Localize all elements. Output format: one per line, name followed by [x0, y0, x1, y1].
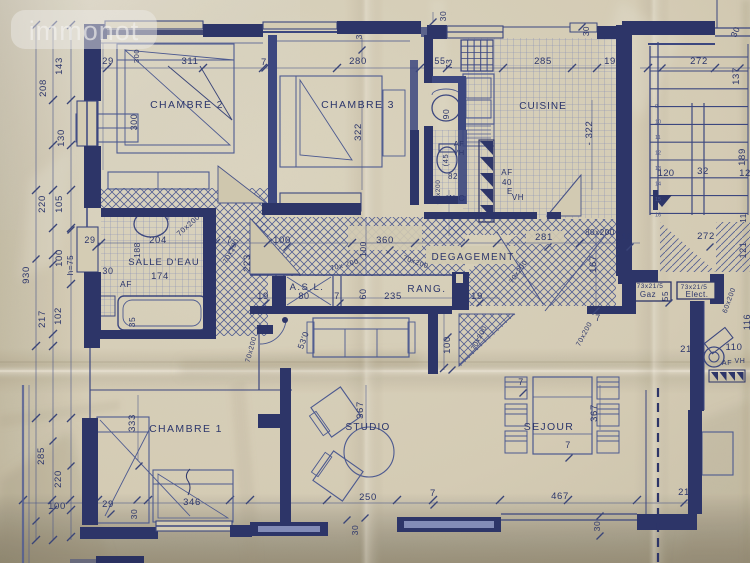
svg-text:217: 217	[37, 310, 48, 328]
svg-text:100: 100	[358, 241, 368, 257]
svg-text:137: 137	[731, 67, 742, 85]
svg-text:(45: (45	[441, 154, 450, 167]
svg-text:90: 90	[441, 109, 451, 120]
svg-text:Gaz: Gaz	[640, 290, 656, 299]
svg-text:189: 189	[737, 148, 748, 166]
svg-text:285: 285	[534, 56, 552, 67]
svg-text:100: 100	[442, 336, 453, 354]
svg-text:60: 60	[358, 288, 368, 299]
svg-text:223: 223	[242, 254, 253, 272]
svg-text:272: 272	[697, 231, 715, 242]
svg-text:40: 40	[502, 178, 512, 187]
svg-text:7: 7	[518, 377, 524, 387]
svg-text:SEJOUR: SEJOUR	[524, 421, 574, 433]
svg-text:250: 250	[359, 492, 377, 503]
svg-text:102: 102	[53, 307, 64, 325]
svg-text:55: 55	[661, 291, 670, 301]
svg-text:120: 120	[658, 168, 675, 179]
svg-text:AF: AF	[120, 279, 132, 289]
svg-text:116: 116	[742, 314, 750, 330]
svg-text:30: 30	[582, 26, 591, 36]
svg-text:143: 143	[54, 57, 65, 75]
svg-text:100: 100	[54, 249, 65, 267]
svg-text:272: 272	[690, 56, 708, 67]
svg-text:9: 9	[655, 104, 658, 110]
svg-text:167: 167	[588, 255, 599, 273]
svg-text:h=75: h=75	[66, 255, 75, 275]
svg-text:220: 220	[37, 195, 48, 213]
svg-text:immonot: immonot	[29, 16, 140, 46]
svg-text:14: 14	[655, 182, 661, 188]
svg-text:7: 7	[595, 313, 601, 323]
svg-text:300: 300	[132, 49, 141, 63]
svg-text:174: 174	[151, 271, 169, 282]
svg-text:208: 208	[38, 79, 49, 97]
svg-text:7: 7	[334, 291, 340, 301]
svg-text:15: 15	[655, 197, 661, 203]
svg-text:367: 367	[589, 404, 600, 422]
svg-text:VH: VH	[735, 358, 746, 365]
svg-text:280: 280	[349, 56, 367, 67]
svg-text:30: 30	[592, 521, 602, 532]
svg-text:CHAMBRE 1: CHAMBRE 1	[149, 423, 223, 435]
svg-text:30: 30	[354, 29, 364, 40]
svg-text:7: 7	[565, 440, 571, 450]
svg-text:100: 100	[273, 235, 291, 246]
svg-text:311: 311	[182, 56, 199, 67]
svg-text:80x200: 80x200	[585, 228, 615, 237]
svg-text:100: 100	[48, 501, 66, 512]
svg-text:CUISINE: CUISINE	[519, 101, 567, 112]
svg-text:RANG.: RANG.	[407, 284, 446, 295]
svg-text:322: 322	[353, 123, 364, 141]
svg-text:W.C: W.C	[446, 193, 465, 203]
svg-text:29: 29	[102, 56, 114, 67]
svg-text:VH: VH	[453, 148, 464, 157]
svg-text:35: 35	[127, 317, 137, 328]
svg-text:29: 29	[102, 499, 114, 510]
svg-text:10: 10	[655, 120, 661, 126]
svg-text:281: 281	[535, 232, 553, 243]
svg-text:AF: AF	[501, 168, 512, 177]
svg-text:130: 130	[56, 129, 67, 147]
svg-text:CHAMBRE 2: CHAMBRE 2	[150, 99, 224, 111]
svg-text:29: 29	[84, 235, 95, 245]
svg-text:7: 7	[427, 51, 433, 61]
svg-text:21: 21	[678, 487, 690, 498]
svg-text:32: 32	[697, 166, 709, 177]
svg-text:30: 30	[102, 266, 113, 276]
svg-text:AF: AF	[722, 360, 732, 367]
svg-text:110: 110	[726, 342, 743, 353]
svg-text:73x21/5: 73x21/5	[637, 283, 664, 290]
svg-text:204: 204	[149, 235, 167, 246]
svg-text:930: 930	[21, 266, 32, 284]
svg-text:188: 188	[132, 242, 142, 258]
svg-text:30: 30	[350, 525, 360, 536]
svg-text:11: 11	[739, 213, 748, 223]
svg-text:11: 11	[655, 135, 661, 141]
svg-text:30: 30	[438, 11, 448, 22]
svg-text:7: 7	[430, 488, 436, 499]
svg-text:121: 121	[738, 242, 748, 259]
svg-text:DEGAGEMENT: DEGAGEMENT	[431, 252, 514, 263]
svg-text:19: 19	[604, 56, 616, 67]
svg-text:285: 285	[36, 447, 47, 465]
svg-text:12: 12	[655, 151, 661, 157]
svg-text:80: 80	[298, 291, 309, 301]
svg-text:367: 367	[355, 401, 366, 419]
svg-text:21: 21	[680, 344, 692, 355]
svg-text:STUDIO: STUDIO	[346, 422, 391, 433]
svg-text:73: 73	[444, 59, 454, 70]
svg-text:82: 82	[448, 172, 458, 181]
svg-text:346: 346	[183, 497, 201, 508]
svg-text:467: 467	[551, 491, 569, 502]
svg-text:300: 300	[129, 114, 139, 131]
svg-text:16: 16	[655, 213, 661, 219]
svg-text:19: 19	[621, 232, 632, 242]
svg-text:333: 333	[127, 414, 138, 432]
svg-text:12: 12	[739, 168, 750, 179]
svg-text:CHAMBRE 3: CHAMBRE 3	[321, 99, 395, 111]
svg-text:19: 19	[257, 291, 269, 302]
svg-text:360: 360	[376, 235, 394, 246]
svg-text:- 322: - 322	[584, 121, 595, 146]
svg-text:30: 30	[129, 509, 139, 520]
svg-text:235: 235	[384, 291, 402, 302]
svg-text:Elect.: Elect.	[685, 290, 708, 299]
svg-text:105: 105	[54, 195, 65, 213]
svg-text:60x200: 60x200	[435, 180, 442, 205]
svg-text:AF: AF	[454, 139, 465, 148]
svg-text:VH: VH	[512, 193, 524, 202]
svg-text:220: 220	[53, 470, 64, 488]
svg-text:19: 19	[471, 291, 483, 302]
